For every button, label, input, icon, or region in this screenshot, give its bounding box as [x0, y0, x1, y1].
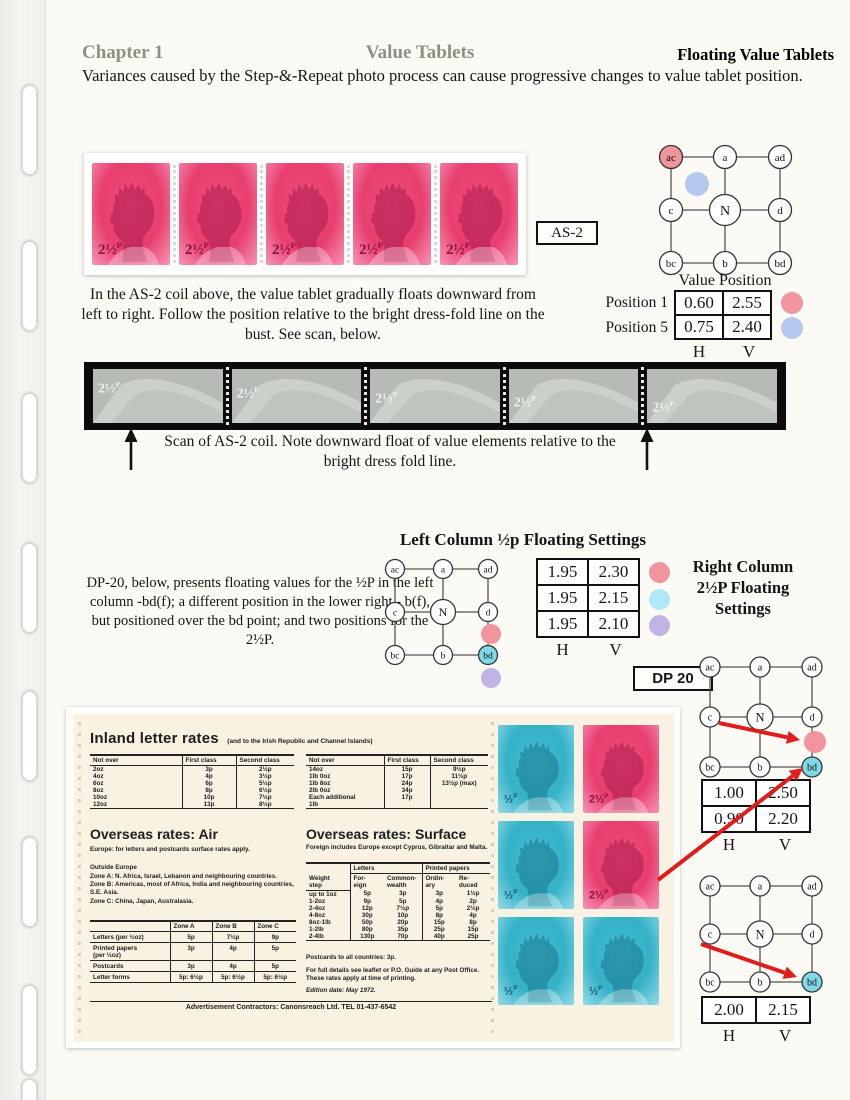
node-label-d: d: [810, 930, 815, 941]
scan-stamp: 2½P: [93, 369, 223, 423]
stamp-value: ½P: [504, 794, 517, 806]
stamp-value-sup: P: [513, 794, 517, 800]
right-settings-title-line3: Settings: [658, 598, 828, 619]
pink-stamp: 2½P: [583, 725, 659, 813]
stamp-value: ½P: [504, 986, 517, 998]
dp20-upper-position-diagram: acaadcNdbcbbd: [693, 652, 828, 784]
stamp-booklet-pane: Inland letter rates (and to the Irish Re…: [74, 714, 674, 1042]
node-label-c: c: [393, 608, 397, 618]
stamp-value-number: 2½: [589, 890, 604, 902]
node-label-bd: bd: [775, 258, 787, 270]
node-label-bc: bc: [705, 978, 715, 989]
stamp-value-sup: P: [204, 241, 209, 250]
value-position-table: Position 10.602.55Position 50.752.40HV: [596, 290, 803, 362]
surface-table-host: Weight stepLettersPrinted papersFor- eig…: [306, 862, 490, 941]
up-arrow-left: [122, 428, 140, 472]
stamp-value-number: 2½: [185, 242, 204, 258]
zone-b-note: Zone B: Americas, most of Africa, India …: [90, 881, 296, 897]
float-dot-pink: [481, 624, 501, 644]
binder-hole: [21, 836, 38, 928]
scan-caption: Scan of AS-2 coil. Note downward float o…: [150, 432, 630, 472]
stamp-value: 2½P: [446, 242, 470, 258]
node-label-N: N: [720, 204, 730, 219]
stamp-value: 2½P: [98, 242, 122, 258]
value-cell-h: 2.00: [701, 996, 757, 1024]
node-label-a: a: [758, 882, 763, 893]
dp20-upper-table: 1.002.500.902.20HV: [701, 779, 813, 855]
stamp-value-number: 2½: [359, 242, 378, 258]
as2-label-box: AS-2: [536, 221, 598, 245]
album-page: Chapter 1 Value Tablets Floating Value T…: [0, 0, 850, 1100]
red-arrow-head: [786, 731, 800, 744]
scan-stamp: 2½P: [509, 369, 639, 423]
advertisement-line: Advertisement Contractors: Canonsreach L…: [90, 1001, 492, 1011]
stamp-value-sup: P: [598, 986, 602, 992]
node-label-c: c: [669, 205, 674, 217]
node-label-bc: bc: [391, 651, 400, 661]
node-label-ad: ad: [807, 663, 816, 674]
red-arrow-head: [783, 967, 797, 979]
axis-label: V: [757, 1024, 813, 1046]
node-label-bd: bd: [807, 978, 817, 989]
float-dot-pink: [804, 731, 826, 753]
scan-cells: 2½P2½P2½P2½P2½P: [93, 367, 777, 425]
hv-footer: HV: [596, 340, 803, 362]
hv-footer: HV: [701, 1024, 813, 1046]
axis-label: V: [757, 833, 813, 855]
value-cell-v: 2.20: [755, 805, 811, 833]
stamp-value-number: 2½: [98, 242, 117, 258]
value-cell-v: 2.40: [722, 314, 772, 340]
page-title: Floating Value Tablets: [677, 45, 834, 65]
node-label-ac: ac: [391, 565, 399, 575]
inland-right-table-host: Not overFirst classSecond class14oz15p9½…: [306, 754, 488, 809]
hv-footer: HV: [536, 638, 670, 660]
left-column-position-diagram: acaadcNdbcbbd: [378, 556, 508, 692]
table-row: Position 50.752.40: [596, 316, 803, 340]
right-settings-title-line2: 2½P Floating: [658, 577, 828, 598]
position-label: Position 5: [596, 319, 674, 337]
pink-stamp: 2½P: [266, 163, 344, 265]
air-europe-note: Europe: for letters and postcards surfac…: [90, 846, 296, 854]
cyan-stamp: ½P: [498, 821, 574, 909]
left-settings-table: 1.952.301.952.151.952.10HV: [536, 558, 670, 660]
node-label-b: b: [758, 763, 763, 774]
table-row: 1.952.15: [536, 586, 670, 612]
chapter-heading: Chapter 1: [82, 42, 163, 64]
surface-note: Foreign includes Europe except Cyprus, G…: [306, 844, 490, 852]
stamp-value-number: ½: [504, 986, 513, 998]
stamp-value: 2½P: [272, 242, 296, 258]
node-label-a: a: [723, 152, 728, 164]
table-row: 1.952.10: [536, 612, 670, 638]
binder-hole: [21, 984, 38, 1076]
stamp-value-sup: P: [513, 986, 517, 992]
binder-hole: [21, 542, 38, 634]
coil-caption: In the AS-2 coil above, the value tablet…: [78, 285, 548, 345]
node-label-b: b: [722, 258, 728, 270]
node-label-d: d: [486, 608, 491, 618]
value-cell-h: 1.95: [536, 558, 589, 586]
inland-title-note: (and to the Irish Republic and Channel I…: [227, 738, 372, 745]
axis-label: H: [536, 638, 589, 660]
pink-stamp: 2½P: [92, 163, 170, 265]
scan-stamp: 2½P: [647, 369, 777, 423]
node-label-b: b: [441, 651, 446, 661]
scan-perforation: [226, 367, 229, 425]
value-cell-h: 1.00: [701, 779, 757, 807]
scan-stamp: 2½P: [232, 369, 362, 423]
node-label-ac: ac: [706, 663, 715, 674]
float-dot-purple: [481, 668, 501, 688]
scan-stamp-value: 2½P: [98, 381, 120, 397]
stamp-value-sup: P: [117, 241, 122, 250]
inland-left-table-host: Not overFirst classSecond class2oz3p2½p4…: [90, 754, 294, 809]
right-settings-title-line1: Right Column: [658, 556, 828, 577]
zone-c-note: Zone C: China, Japan, Australasia.: [90, 898, 296, 906]
air-heading: Overseas rates: Air: [90, 826, 218, 842]
table-row: Position 10.602.55: [596, 290, 803, 316]
table-row: 1.952.30: [536, 558, 670, 586]
node-label-bd: bd: [807, 763, 817, 774]
float-dot-blue: [685, 172, 709, 196]
booklet-stamps: ½P2½P½P2½P½P½P: [498, 725, 659, 1005]
stamp-value-sup: P: [465, 241, 470, 250]
scan-stamp: 2½P: [370, 369, 500, 423]
scan-stamp-value: 2½P: [514, 395, 536, 411]
stamp-value-number: 2½: [446, 242, 465, 258]
perforation: [434, 165, 437, 263]
as2-scan-strip: 2½P2½P2½P2½P2½P: [84, 362, 786, 430]
position-label: Position 1: [596, 294, 674, 312]
stamp-value-number: ½: [504, 794, 513, 806]
perforation: [347, 165, 350, 263]
value-cell-v: 2.10: [587, 610, 640, 638]
air-outside-heading: Outside Europe: [90, 864, 137, 872]
stamp-value-sup: P: [513, 890, 517, 896]
as2-position-diagram: acaadcNdbcbbd: [645, 142, 815, 282]
node-label-c: c: [708, 713, 713, 724]
stamp-value: 2½P: [185, 242, 209, 258]
pink-stamp: 2½P: [440, 163, 518, 265]
stamp-value: ½P: [504, 890, 517, 902]
scan-stamp-value: 2½P: [375, 391, 397, 407]
value-cell-h: 1.95: [536, 584, 589, 612]
scan-stamp-value: 2½P: [652, 400, 674, 416]
surface-rates-table: Weight stepLettersPrinted papersFor- eig…: [306, 862, 490, 941]
inland-title-line: Inland letter rates (and to the Irish Re…: [90, 730, 372, 748]
stamp-value-number: 2½: [589, 794, 604, 806]
up-arrow-right: [638, 428, 656, 472]
node-label-ad: ad: [484, 565, 493, 575]
stamp-value-sup: P: [604, 794, 608, 800]
right-settings-title: Right Column 2½P Floating Settings: [658, 556, 828, 619]
node-label-bc: bc: [705, 763, 715, 774]
scan-perforation: [503, 367, 506, 425]
cyan-stamp: ½P: [498, 917, 574, 1005]
inland-rates-left-table: Not overFirst classSecond class2oz3p2½p4…: [90, 754, 294, 809]
stamp-value-sup: P: [604, 890, 608, 896]
value-cell-h: 0.90: [701, 805, 757, 833]
value-cell-v: 2.30: [587, 558, 640, 586]
surface-edition-note: Edition date: May 1972.: [306, 987, 490, 995]
axis-label: H: [701, 1024, 757, 1046]
section-heading: Value Tablets: [300, 42, 540, 64]
dp20-lower-position-diagram: acaadcNdbcbbd: [693, 874, 828, 999]
as2-coil-strip: 2½P2½P2½P2½P2½P: [84, 153, 526, 275]
node-label-N: N: [755, 927, 764, 941]
value-cell-h: 0.60: [674, 290, 724, 316]
perforation: [173, 165, 176, 263]
intro-paragraph: Variances caused by the Step-&-Repeat ph…: [82, 65, 834, 87]
color-dot: [781, 292, 803, 314]
air-table-host: Zone AZone BZone CLetters (per ½oz)5p7½p…: [90, 920, 296, 983]
cyan-stamp: ½P: [583, 917, 659, 1005]
dp20-lower-table: 2.002.15HV: [701, 996, 813, 1046]
binder-hole: [21, 690, 38, 782]
node-label-a: a: [758, 663, 763, 674]
stamp-value: 2½P: [589, 890, 608, 902]
stamp-value: 2½P: [589, 794, 608, 806]
inland-rates-right-table: Not overFirst classSecond class14oz15p9½…: [306, 754, 488, 809]
pink-stamp: 2½P: [583, 821, 659, 909]
color-dot: [781, 317, 803, 339]
axis-label: V: [589, 638, 642, 660]
value-cell-v: 2.15: [587, 584, 640, 612]
node-label-ac: ac: [706, 882, 715, 893]
node-label-bd: bd: [483, 651, 493, 661]
node-label-b: b: [758, 978, 763, 989]
node-label-ac: ac: [666, 152, 676, 164]
pink-stamp: 2½P: [179, 163, 257, 265]
node-label-c: c: [708, 930, 713, 941]
node-label-d: d: [810, 713, 815, 724]
pink-stamp: 2½P: [353, 163, 431, 265]
binder-hole: [21, 1078, 38, 1100]
node-label-d: d: [777, 205, 783, 217]
left-settings-title: Left Column ½p Floating Settings: [378, 530, 668, 550]
inland-title: Inland letter rates: [90, 730, 219, 747]
cyan-stamp: ½P: [498, 725, 574, 813]
scan-perforation: [641, 367, 644, 425]
node-label-ad: ad: [807, 882, 816, 893]
value-cell-v: 2.50: [755, 779, 811, 807]
value-cell-v: 2.15: [755, 996, 811, 1024]
scan-perforation: [364, 367, 367, 425]
table-row: 0.902.20: [701, 807, 813, 833]
hv-footer: HV: [701, 833, 813, 855]
stamp-value-sup: P: [378, 241, 383, 250]
value-position-title: Value Position: [630, 272, 820, 290]
table-row: 1.002.50: [701, 779, 813, 807]
stamp-value-number: 2½: [272, 242, 291, 258]
zone-notes: Zone A: N. Africa, Israel, Lebanon and n…: [90, 873, 296, 906]
surface-heading: Overseas rates: Surface: [306, 826, 466, 842]
binder-hole: [21, 84, 38, 176]
air-rates-table: Zone AZone BZone CLetters (per ½oz)5p7½p…: [90, 920, 296, 983]
value-cell-v: 2.55: [722, 290, 772, 316]
surface-details-note: For full details see leaflet or P.O. Gui…: [306, 967, 490, 983]
axis-label: H: [674, 340, 724, 362]
red-arrow-line: [701, 944, 785, 973]
stamp-value: 2½P: [359, 242, 383, 258]
node-label-bc: bc: [666, 258, 677, 270]
binder-hole: [21, 392, 38, 484]
axis-label: V: [724, 340, 774, 362]
zone-a-note: Zone A: N. Africa, Israel, Lebanon and n…: [90, 873, 296, 881]
stamp-value: ½P: [589, 986, 602, 998]
node-label-N: N: [755, 710, 764, 724]
stamp-value-number: ½: [504, 890, 513, 902]
stamp-value-sup: P: [291, 241, 296, 250]
binder-hole: [21, 240, 38, 332]
scan-stamp-value: 2½P: [237, 386, 259, 402]
axis-label: H: [701, 833, 757, 855]
perforation: [260, 165, 263, 263]
node-label-N: N: [439, 605, 448, 619]
stamp-value-number: ½: [589, 986, 598, 998]
table-row: 2.002.15: [701, 996, 813, 1024]
value-cell-h: 1.95: [536, 610, 589, 638]
value-cell-h: 0.75: [674, 314, 724, 340]
binder-strip: [0, 0, 46, 1100]
surface-postcards-note: Postcards to all countries: 3p.: [306, 954, 490, 962]
node-label-ad: ad: [775, 152, 786, 164]
